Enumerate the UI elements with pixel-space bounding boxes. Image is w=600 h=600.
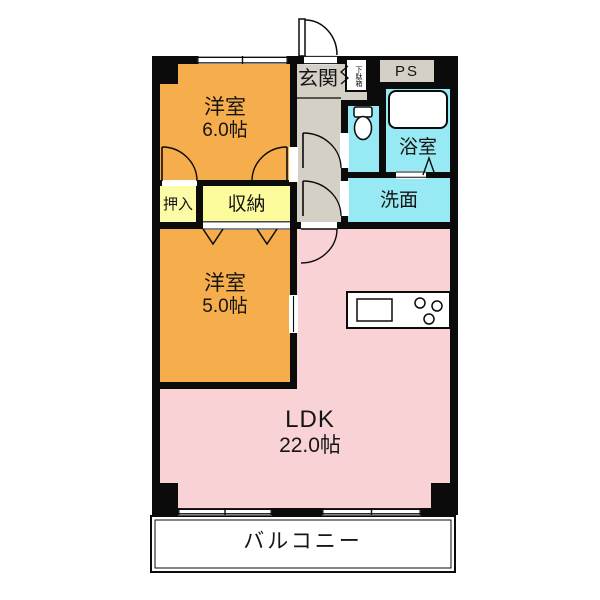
corner-bottom-right [431, 483, 458, 515]
opening-oshiire-door [162, 180, 197, 186]
opening-closet-doors [203, 221, 290, 230]
ldk-size: 22.0帖 [230, 434, 390, 458]
bathroom-fill [386, 89, 450, 172]
label-western-room-6: 洋室 6.0帖 [160, 96, 290, 142]
entrance-door-leaf [299, 19, 305, 56]
ldk-name: LDK [230, 406, 390, 434]
opening-western6-door [289, 147, 298, 182]
opening-hall-ldk-door [301, 222, 337, 229]
wall-h-toilet-top [341, 100, 386, 106]
wall-v-toilet-bath [379, 100, 386, 178]
label-ldk: LDK 22.0帖 [230, 406, 390, 458]
label-bathroom: 浴室 [386, 137, 450, 159]
western-room-5-size: 5.0帖 [160, 296, 290, 318]
window-top-band [197, 57, 288, 64]
floor-plan: 洋室 6.0帖 洋室 5.0帖 LDK 22.0帖 玄関 下駄箱 PS 浴室 洗… [0, 0, 600, 600]
western-room-5-name: 洋室 [160, 272, 290, 296]
wall-bottom-stub [421, 508, 431, 515]
opening-entrance-door [304, 55, 337, 65]
corner-top-left [152, 56, 178, 84]
label-closet-oshiire: 押入 [159, 196, 197, 213]
wall-bottom [152, 508, 458, 515]
toilet-room-fill [348, 106, 379, 172]
entrance-door-arc [305, 20, 337, 55]
western-room-6-size: 6.0帖 [160, 120, 290, 142]
ldk-fill-right [297, 229, 450, 508]
opening-toilet-door [340, 133, 349, 168]
wall-left [152, 56, 160, 515]
wall-under-ps [386, 84, 450, 89]
label-pipe-space: PS [378, 63, 436, 80]
wall-h-western5-bottom [152, 382, 297, 389]
wall-right [450, 56, 458, 515]
corner-bottom-left [152, 483, 178, 515]
label-shoe-cabinet: 下駄箱 [352, 63, 362, 89]
label-western-room-5: 洋室 5.0帖 [160, 272, 290, 318]
label-washroom: 洗面 [348, 190, 450, 212]
opening-bath-door [396, 171, 426, 179]
label-closet-shuunou: 収納 [203, 194, 290, 216]
western-room-6-name: 洋室 [160, 96, 290, 120]
wall-v-oshiire-shuunou [196, 180, 203, 229]
label-entrance: 玄関 [295, 68, 341, 91]
opening-western5-slider [289, 295, 298, 333]
label-balcony: バルコニー [150, 530, 456, 554]
